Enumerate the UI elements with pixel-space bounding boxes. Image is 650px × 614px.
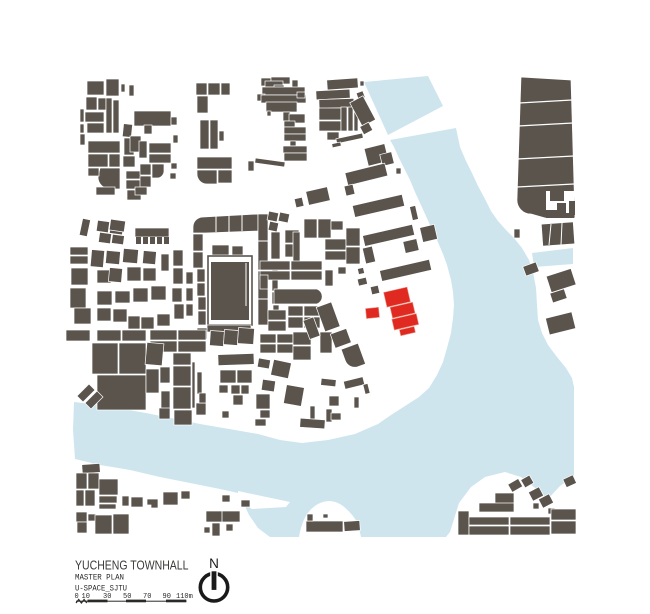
svg-text:N: N	[209, 556, 219, 571]
svg-text:MASTER PLAN: MASTER PLAN	[75, 573, 124, 583]
svg-text:YUCHENG TOWNHALL: YUCHENG TOWNHALL	[75, 558, 189, 573]
svg-text:U-SPACE_SJTU: U-SPACE_SJTU	[75, 584, 127, 594]
